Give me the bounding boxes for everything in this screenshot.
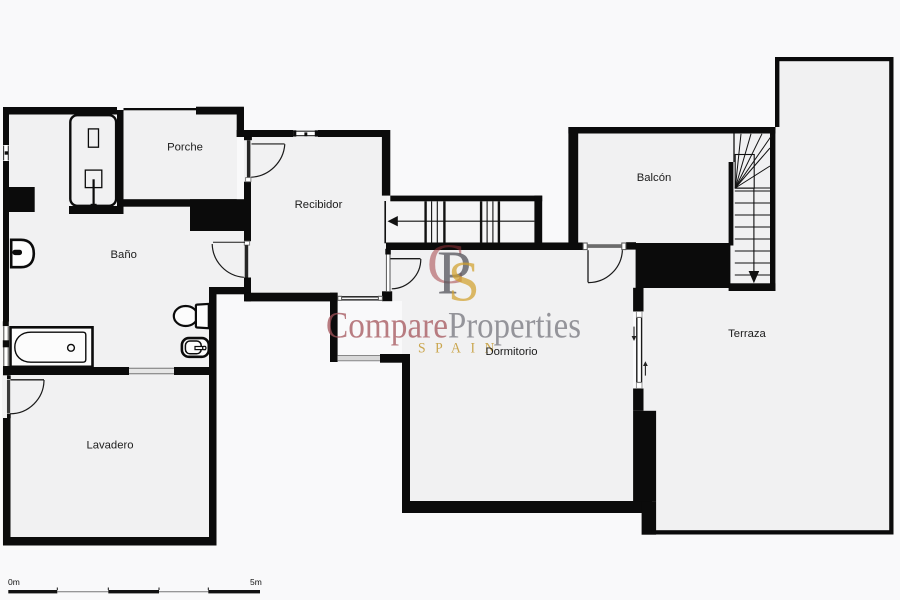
svg-text:Baño: Baño bbox=[111, 249, 137, 261]
svg-text:Terraza: Terraza bbox=[728, 328, 766, 340]
svg-text:Dormitorio: Dormitorio bbox=[485, 346, 537, 358]
svg-text:S: S bbox=[448, 251, 480, 314]
svg-text:5m: 5m bbox=[250, 577, 262, 587]
svg-text:Balcón: Balcón bbox=[637, 172, 672, 184]
svg-text:Lavadero: Lavadero bbox=[86, 440, 133, 452]
svg-text:Porche: Porche bbox=[167, 141, 203, 153]
svg-text:0m: 0m bbox=[8, 577, 20, 587]
svg-text:Recibidor: Recibidor bbox=[295, 199, 343, 211]
